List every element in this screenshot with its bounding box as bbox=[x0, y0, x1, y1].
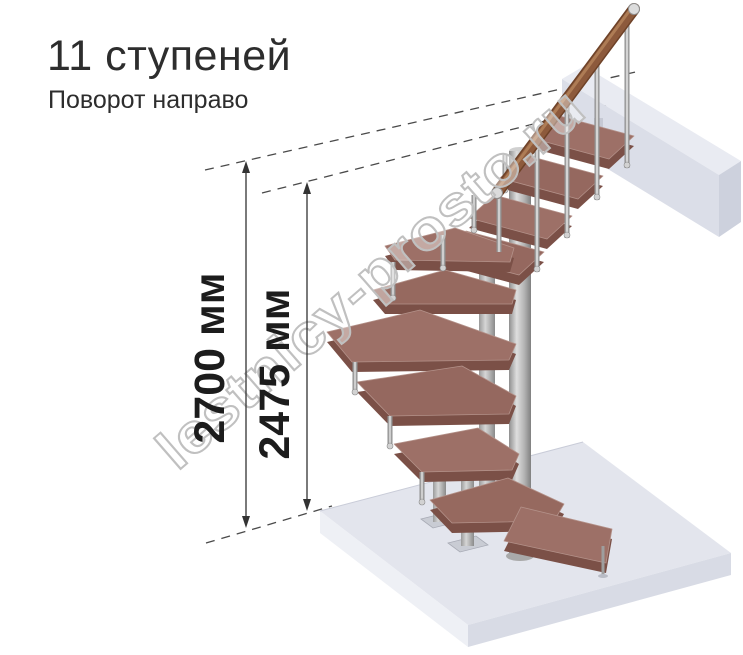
arrow-up-icon bbox=[242, 161, 250, 173]
dimension-2700: 2700 мм bbox=[186, 161, 250, 528]
dimension-label-2700: 2700 мм bbox=[186, 272, 234, 443]
extension-line-bottom bbox=[206, 506, 332, 543]
dimension-label-2475: 2475 мм bbox=[251, 288, 299, 459]
arrow-down-icon bbox=[303, 499, 311, 511]
handrail-top-cap bbox=[629, 4, 640, 15]
step bbox=[394, 428, 519, 482]
staircase-diagram-page: 11 ступеней Поворот направо bbox=[0, 0, 743, 655]
staircase-figure: lestnicy-prosto.ru 2700 мм 2475 мм bbox=[0, 0, 743, 655]
arrow-down-icon bbox=[242, 516, 250, 528]
arrow-up-icon bbox=[303, 182, 311, 194]
